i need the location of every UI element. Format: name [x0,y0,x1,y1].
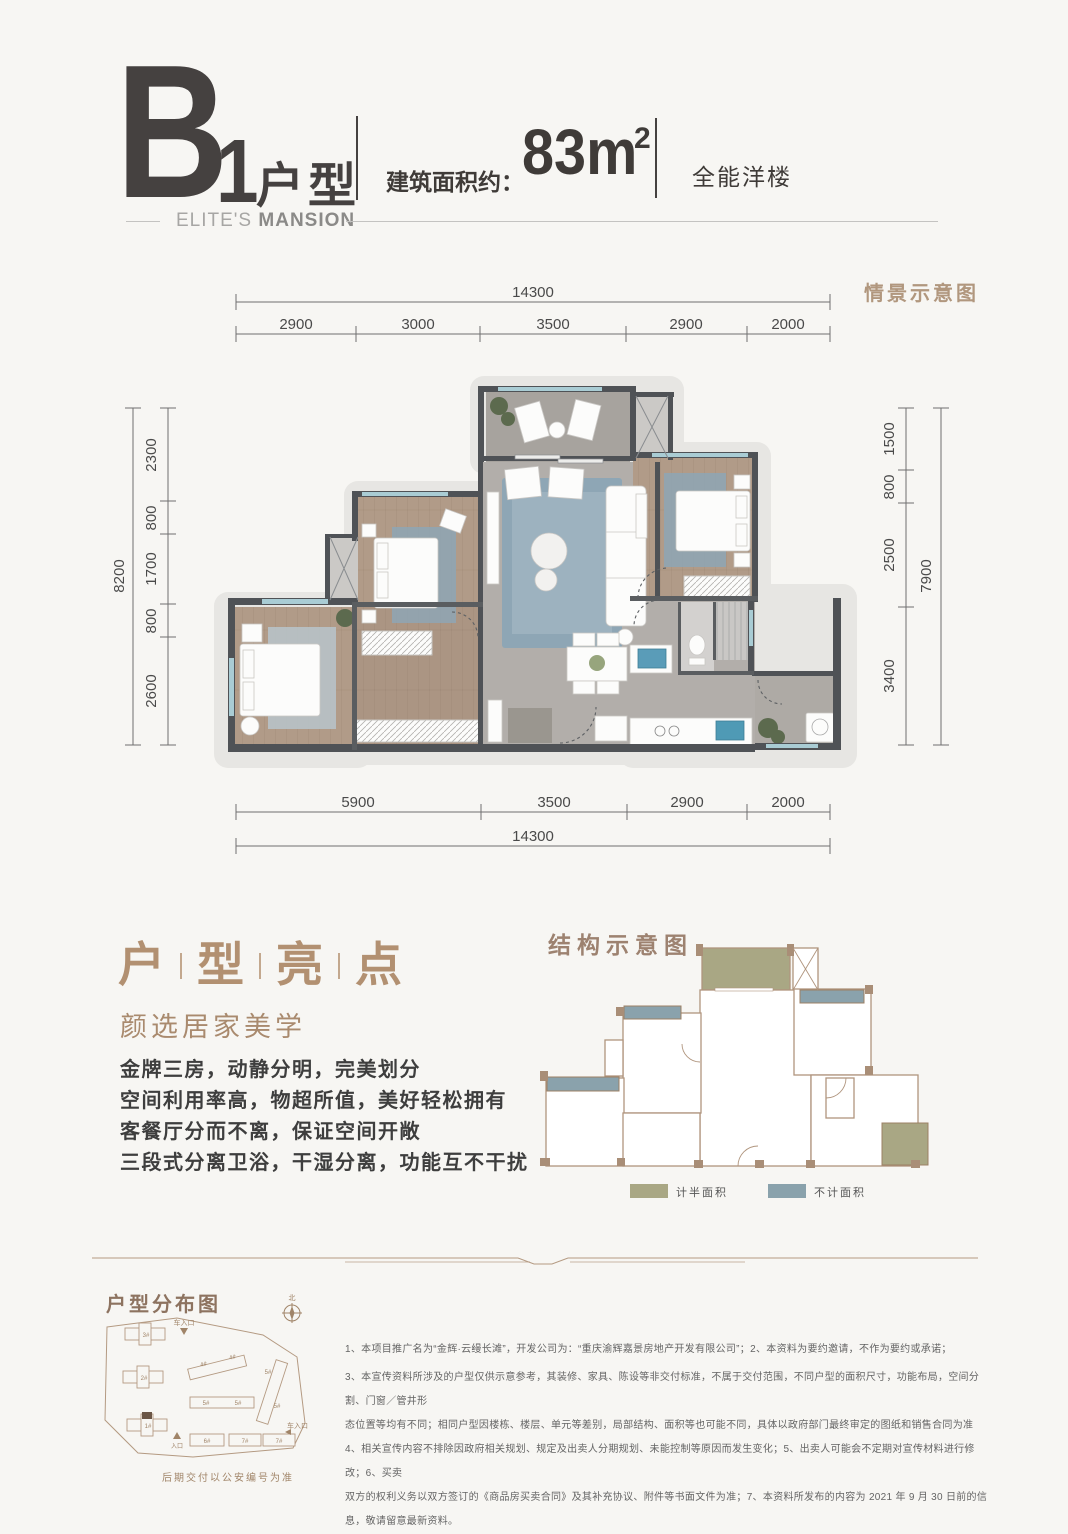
brand-line-right [346,221,938,222]
dining-chair [573,681,595,694]
brand-light: ELITE'S [176,210,258,231]
category-label: 全能洋楼 [692,158,792,192]
coffee-table [531,533,567,569]
svg-text:2#: 2# [141,1376,148,1382]
highlights-title: 户型亮点 [118,942,402,989]
nightstand [734,553,750,567]
highlights-title-char: 亮 [276,942,323,989]
highlights-title-char: 点 [355,942,402,989]
highlight-bullet: 金牌三房，动静分明，完美划分 [120,1060,529,1080]
dim-right-seg: 3400 [881,659,898,692]
side-table [549,422,565,438]
svg-text:5#: 5# [274,1404,281,1410]
struct-shaft [605,1040,623,1076]
disclaimer-line: 4、相关宣传内容不排除因政府相关规划、规定及出卖人分期规划、未能控制等原因而发生… [345,1438,995,1486]
dim-bottom-seg: 3500 [537,794,570,811]
title-separator [180,953,182,979]
struct-uncounted-area [547,1077,619,1091]
dim-top-seg: 2000 [771,316,804,333]
title-separator [259,953,261,979]
dim-left-seg: 1700 [143,552,160,585]
entry-mat [508,708,552,743]
plan-number: 1 [216,127,259,217]
toilet-tank [689,658,705,665]
svg-text:3#: 3# [143,1333,150,1339]
disclaimer-line: 态位置等均有不同；相同户型因楼栋、楼层、单元等差别，局部结构、面积等也可能不同，… [345,1414,995,1438]
dining-chair [597,681,619,694]
nightstand [734,475,750,489]
north-label: 北 [289,1294,296,1302]
pillow [736,524,747,546]
struct-balcony [702,948,790,990]
dim-left-seg: 2600 [143,674,160,707]
dim-top-seg: 3500 [536,316,569,333]
struct-uncounted-area [800,990,864,1003]
dim-left-seg: 2300 [143,438,160,471]
washer [806,713,834,742]
compass: 北 [282,1294,302,1323]
highlights-subtitle: 颜选居家美学 [120,1005,306,1044]
dim-top-seg: 2900 [669,316,702,333]
tv-console [487,492,499,584]
plan-letter: B [116,37,225,227]
disclaimer: 1、本项目推广名为“金辉·云缦长滩”，开发公司为：“重庆渝辉嘉景房地产开发有限公… [345,1338,995,1534]
coffee-table [535,569,557,591]
sliding-door [515,455,560,459]
plant [771,730,785,744]
disclaimer-line: 双方的权利义务以双方签订的《商品房买卖合同》及其补充协议、附件等书面文件为准；7… [345,1486,995,1534]
dim-left-seg: 800 [143,505,160,530]
disclaimer-line: 1、本项目推广名为“金辉·云缦长滩”，开发公司为：“重庆渝辉嘉景房地产开发有限公… [345,1338,995,1362]
legend-label-half-area: 计半面积 [676,1185,728,1199]
site-map: 3# 2# 1# 4# 4# 5# 5# 5# 5# 6# 7# 7# 北 车入… [88,1285,348,1500]
legend-swatch-half-area [630,1184,668,1198]
struct-half-area [882,1123,928,1165]
dim-bottom-total: 14300 [512,828,554,845]
title-separator [338,953,340,979]
structure-diagram: 计半面积 不计面积 [530,925,960,1215]
armchair [548,467,584,499]
brand-line-left [126,221,160,222]
brand-bold: MANSION [258,210,355,231]
svg-text:5#: 5# [203,1401,210,1407]
dining-chair [573,633,595,646]
dim-right-seg: 800 [881,474,898,499]
kitchen-sink [716,721,744,740]
area-exponent: 2 [634,122,651,156]
dim-left-outer: 8200 [111,559,128,592]
dim-bottom-seg: 2900 [670,794,703,811]
structure-legend: 计半面积 不计面积 [630,1184,866,1199]
pillow [736,496,747,518]
svg-text:7#: 7# [276,1439,283,1445]
shoe-cabinet [488,700,502,742]
entrance-top-label: 车入口 [174,1318,195,1327]
entry-cabinet [595,716,627,741]
entrances: 车入口 车入口 入口 [171,1318,308,1450]
nightstand [242,624,262,642]
building-5-bar [190,1397,254,1408]
svg-text:7#: 7# [242,1439,249,1445]
header-divider-2 [655,118,657,198]
section-divider [90,1250,980,1270]
dresser [636,494,647,538]
struct-corridor [623,1113,700,1166]
area-label: 建筑面积约： [386,163,524,197]
entrance-bottom-label: 入口 [171,1443,183,1450]
pillow [377,572,388,598]
struct-bedroom1 [623,1013,701,1113]
floor-lamp [617,629,633,645]
pillow [243,650,254,678]
highlights-title-char: 户 [118,942,165,989]
dim-bottom-seg: 5900 [341,794,374,811]
svg-text:1#: 1# [145,1424,152,1430]
sliding-door [558,459,603,463]
plant [490,397,508,415]
legend-swatch-uncounted [768,1184,806,1198]
dim-right-seg: 2500 [881,538,898,571]
toilet [689,635,705,655]
sink [638,649,666,668]
plant [336,609,354,627]
dim-right-seg: 1500 [881,422,898,455]
struct-uncounted-area [624,1006,681,1019]
svg-text:5#: 5# [265,1370,272,1376]
centerpiece-plant [589,655,605,671]
disclaimer-line: 3、本宣传资料所涉及的户型仅供示意参考，其装修、家具、陈设等非交付标准，不属于交… [345,1366,995,1414]
current-building-marker [142,1412,152,1419]
brand-text: ELITE'S MANSION [176,210,355,232]
dim-top-seg: 3000 [401,316,434,333]
stool [241,717,259,735]
floor-plan: 14300 2900 3000 3500 2900 2000 5900 3500… [90,270,980,880]
armchair [505,466,542,499]
highlight-bullet: 三段式分离卫浴，干湿分离，功能互不干扰 [120,1153,529,1173]
dim-left-seg: 800 [143,608,160,633]
legend-label-uncounted: 不计面积 [814,1186,866,1199]
nightstand [362,524,376,537]
nightstand [362,610,376,623]
site-map-caption: 后期交付以公安编号为准 [162,1471,294,1484]
plant [501,412,515,426]
dim-right-outer: 7900 [918,559,935,592]
pillow [377,543,388,569]
dim-top-seg: 2900 [279,316,312,333]
area-value: 83m [522,120,637,184]
pillow [243,682,254,710]
wardrobe-hatch [684,576,750,598]
highlights-bullets: 金牌三房，动静分明，完美划分 空间利用率高，物超所值，美好轻松拥有 客餐厅分而不… [120,1060,529,1184]
svg-text:6#: 6# [204,1439,211,1445]
building-5-column [256,1360,287,1425]
plan-type-label: 户型 [256,146,360,216]
brochure-page: B 1 户型 建筑面积约： 83m 2 全能洋楼 ELITE'S MANSION… [0,0,1068,1534]
header-divider-1 [356,116,358,200]
dining-chair [597,633,619,646]
svg-text:5#: 5# [235,1401,242,1407]
highlight-bullet: 空间利用率高，物超所值，美好轻松拥有 [120,1091,529,1111]
wardrobe-hatch [362,631,432,655]
dim-top-total: 14300 [512,284,554,301]
highlights-title-char: 型 [197,942,244,989]
highlight-bullet: 客餐厅分而不离，保证空间开敞 [120,1122,529,1142]
entrance-right-label: 车入口 [287,1421,308,1430]
closet-wardrobe-hatch [356,720,482,742]
dim-bottom-seg: 2000 [771,794,804,811]
building-4-bar [188,1355,247,1380]
